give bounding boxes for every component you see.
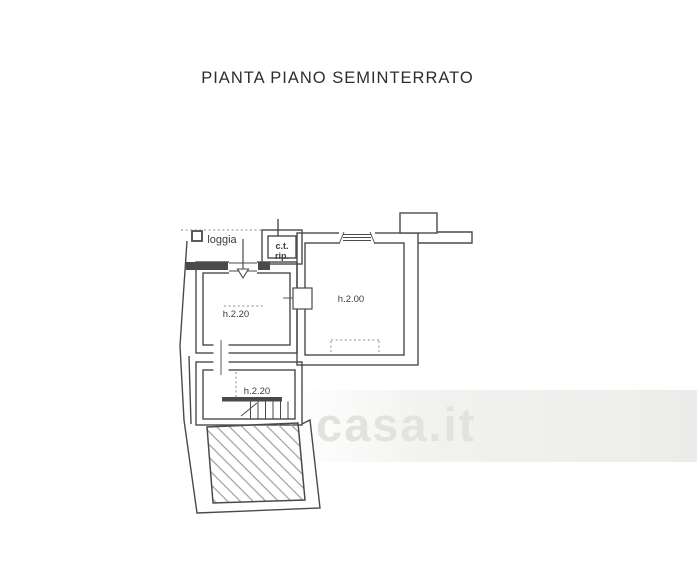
filled-walls bbox=[186, 262, 270, 270]
rip-label: rip. bbox=[275, 251, 289, 261]
stair-treads bbox=[241, 402, 288, 420]
hatched-area bbox=[207, 423, 305, 503]
stair-room-height-label: h.2.20 bbox=[244, 386, 270, 397]
top-protrusion bbox=[400, 213, 437, 233]
loggia-wall-right-segment bbox=[258, 262, 270, 270]
loggia-label: loggia bbox=[207, 234, 237, 246]
floor-plan: casa.it bbox=[0, 0, 697, 572]
stair-landing-bar bbox=[222, 397, 282, 402]
screenshot-root: PIANTA PIANO SEMINTERRATO casa.it bbox=[0, 0, 697, 572]
right-room-height-label: h.2.00 bbox=[338, 294, 364, 305]
stair-direction-line bbox=[241, 403, 257, 416]
interior-door-box bbox=[293, 288, 312, 309]
ct-label: c.t. bbox=[275, 241, 288, 251]
left-room-outer-wall bbox=[196, 262, 297, 353]
left-cavity-wall-line bbox=[189, 356, 191, 424]
watermark-text: casa.it bbox=[316, 398, 476, 451]
staircase bbox=[222, 397, 288, 419]
left-room-height-label: h.2.20 bbox=[223, 309, 249, 320]
loggia-wall-left-segment bbox=[186, 262, 228, 270]
right-room-top-door-opening bbox=[339, 231, 375, 245]
loggia-pillar bbox=[192, 231, 202, 241]
